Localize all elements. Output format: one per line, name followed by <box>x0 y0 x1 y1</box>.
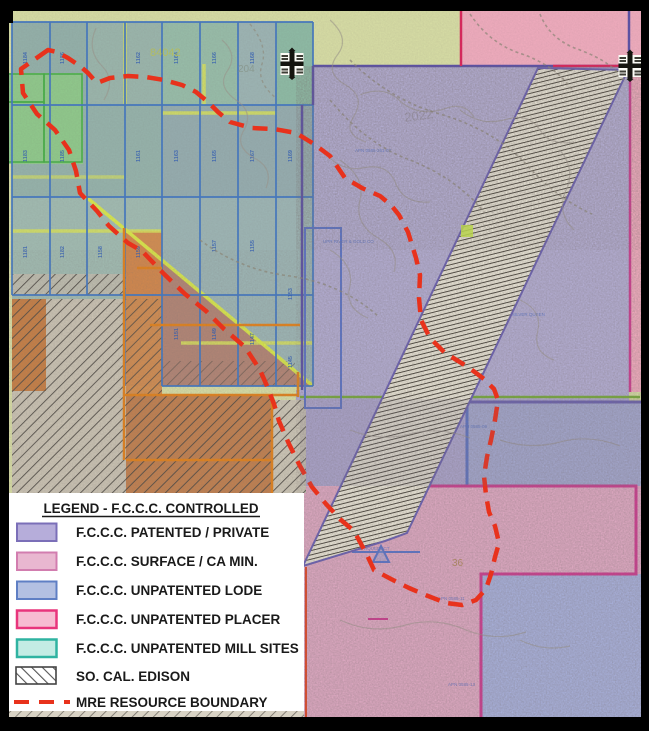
svg-text:F.C.C.C. PATENTED / PRIVATE: F.C.C.C. PATENTED / PRIVATE <box>76 525 269 540</box>
svg-text:F.C.C.C. UNPATENTED LODE: F.C.C.C. UNPATENTED LODE <box>76 583 262 598</box>
svg-text:F.C.C.C. UNPATENTED PLACER: F.C.C.C. UNPATENTED PLACER <box>76 612 281 627</box>
svg-text:SO. CAL. EDISON: SO. CAL. EDISON <box>76 669 190 684</box>
svg-text:F.C.C.C. SURFACE / CA MIN.: F.C.C.C. SURFACE / CA MIN. <box>76 554 258 569</box>
svg-text:LEGEND - F.C.C.C. CONTROLLED: LEGEND - F.C.C.C. CONTROLLED <box>44 501 259 516</box>
svg-text:F.C.C.C. UNPATENTED MILL SITES: F.C.C.C. UNPATENTED MILL SITES <box>76 641 299 656</box>
svg-text:MRE RESOURCE BOUNDARY: MRE RESOURCE BOUNDARY <box>76 695 268 710</box>
